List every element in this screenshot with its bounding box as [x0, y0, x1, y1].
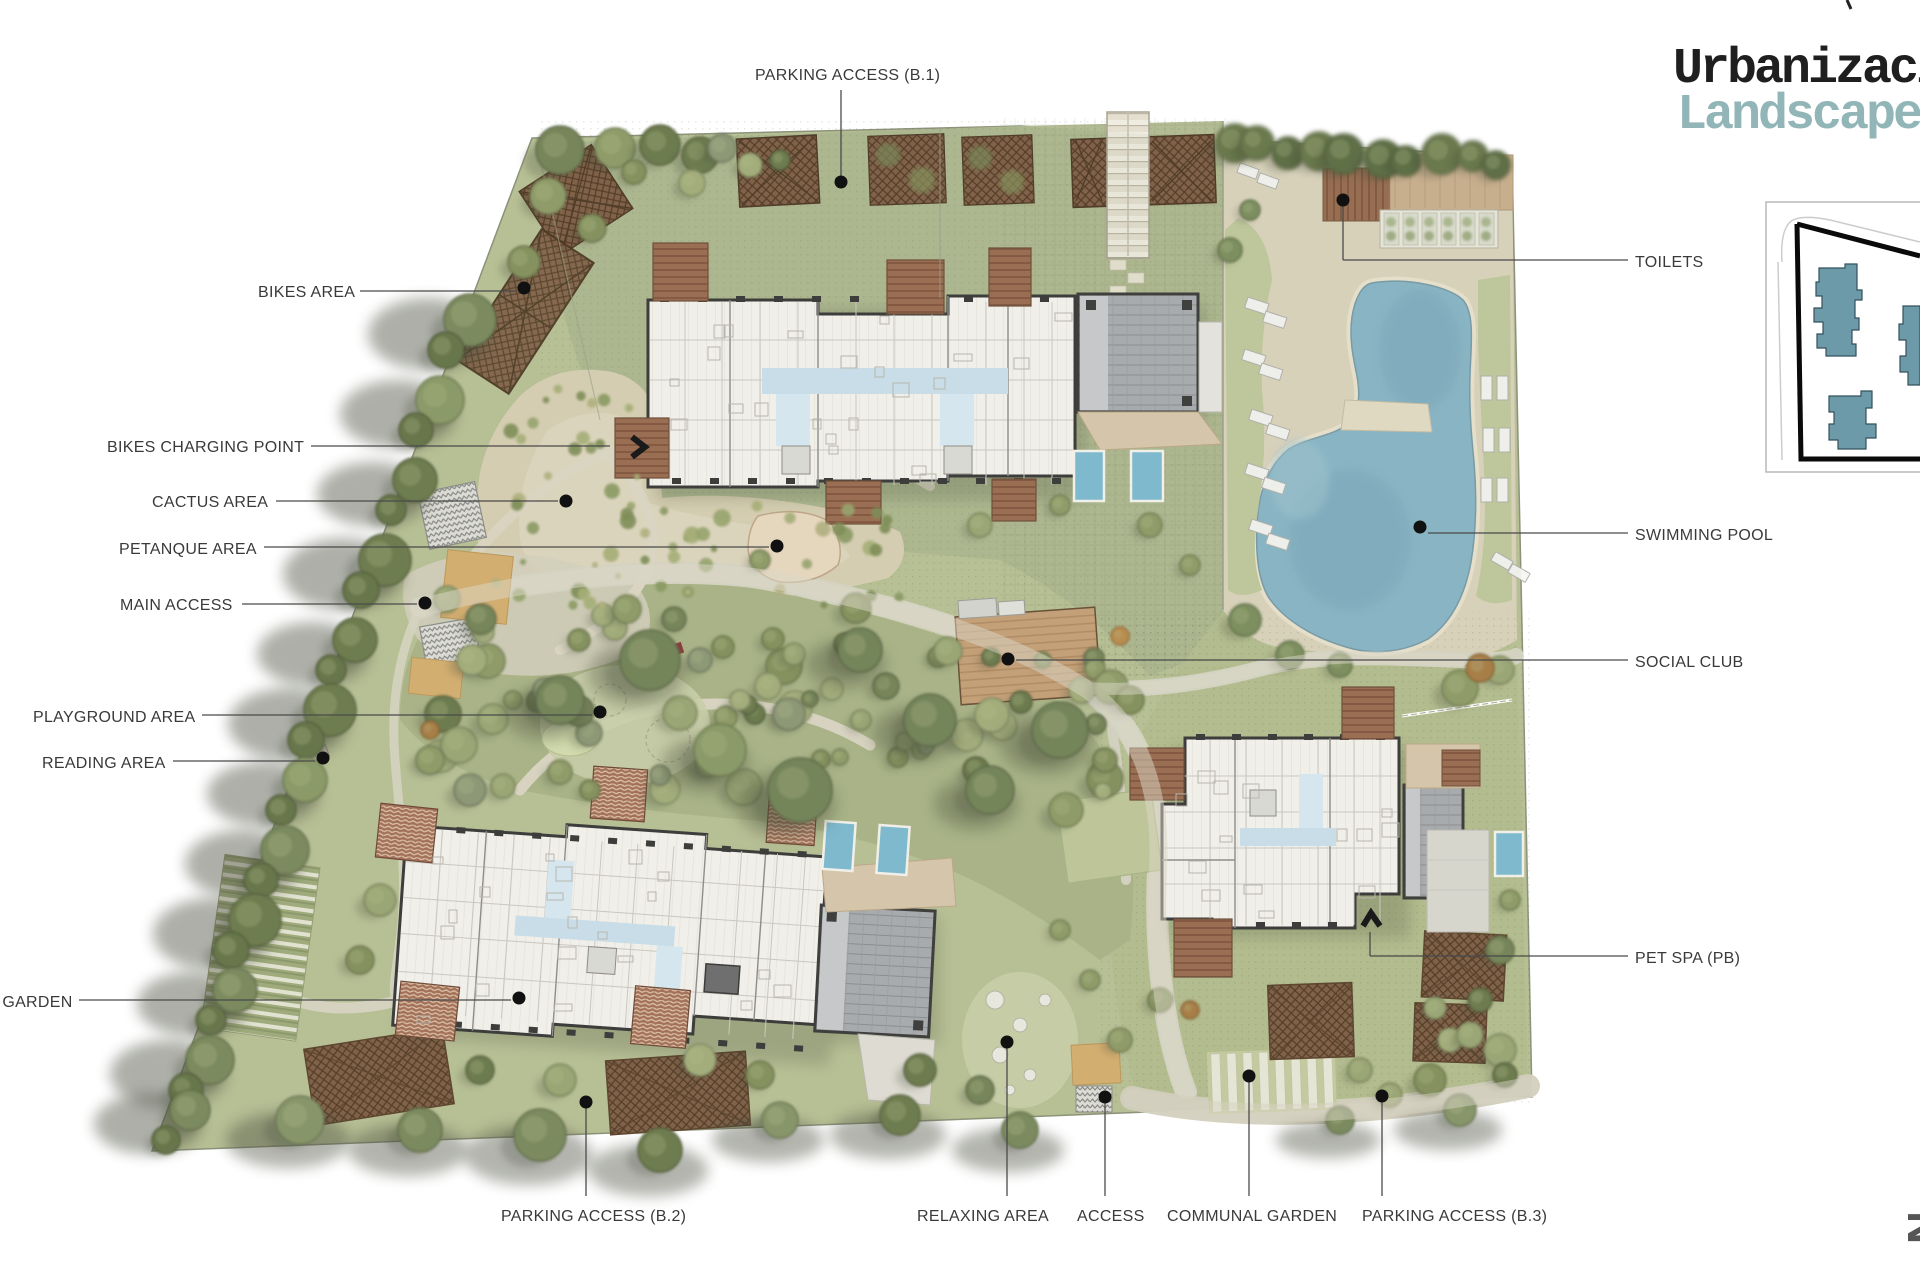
svg-text:N: N: [1898, 1211, 1920, 1244]
svg-text:RELAXING AREA: RELAXING AREA: [917, 1208, 1049, 1225]
svg-text:COMMUNAL GARDEN: COMMUNAL GARDEN: [1167, 1208, 1337, 1225]
svg-text:PARKING ACCESS (B.1): PARKING ACCESS (B.1): [755, 67, 940, 84]
svg-text:ACCESS: ACCESS: [1077, 1208, 1145, 1225]
svg-text:PARKING ACCESS (B.3): PARKING ACCESS (B.3): [1362, 1208, 1547, 1225]
svg-text:PARKING ACCESS (B.2): PARKING ACCESS (B.2): [501, 1208, 686, 1225]
svg-text:Landscape Masterplan: Landscape Masterplan: [1677, 87, 1920, 144]
svg-text:BIKES CHARGING POINT: BIKES CHARGING POINT: [107, 439, 304, 456]
svg-text:READING AREA: READING AREA: [42, 755, 166, 772]
svg-text:SOCIAL CLUB: SOCIAL CLUB: [1635, 654, 1744, 671]
svg-text:PET SPA (PB): PET SPA (PB): [1635, 950, 1740, 967]
svg-text:TOILETS: TOILETS: [1635, 254, 1704, 271]
svg-text:PETANQUE AREA: PETANQUE AREA: [119, 541, 257, 558]
svg-text:CACTUS AREA: CACTUS AREA: [152, 494, 268, 511]
svg-text:MAIN ACCESS: MAIN ACCESS: [120, 597, 233, 614]
svg-text:AL GARDEN: AL GARDEN: [0, 994, 73, 1011]
svg-text:PLAYGROUND AREA: PLAYGROUND AREA: [33, 709, 195, 726]
svg-text:SWIMMING POOL: SWIMMING POOL: [1635, 527, 1773, 544]
svg-text:BIKES AREA: BIKES AREA: [258, 284, 355, 301]
